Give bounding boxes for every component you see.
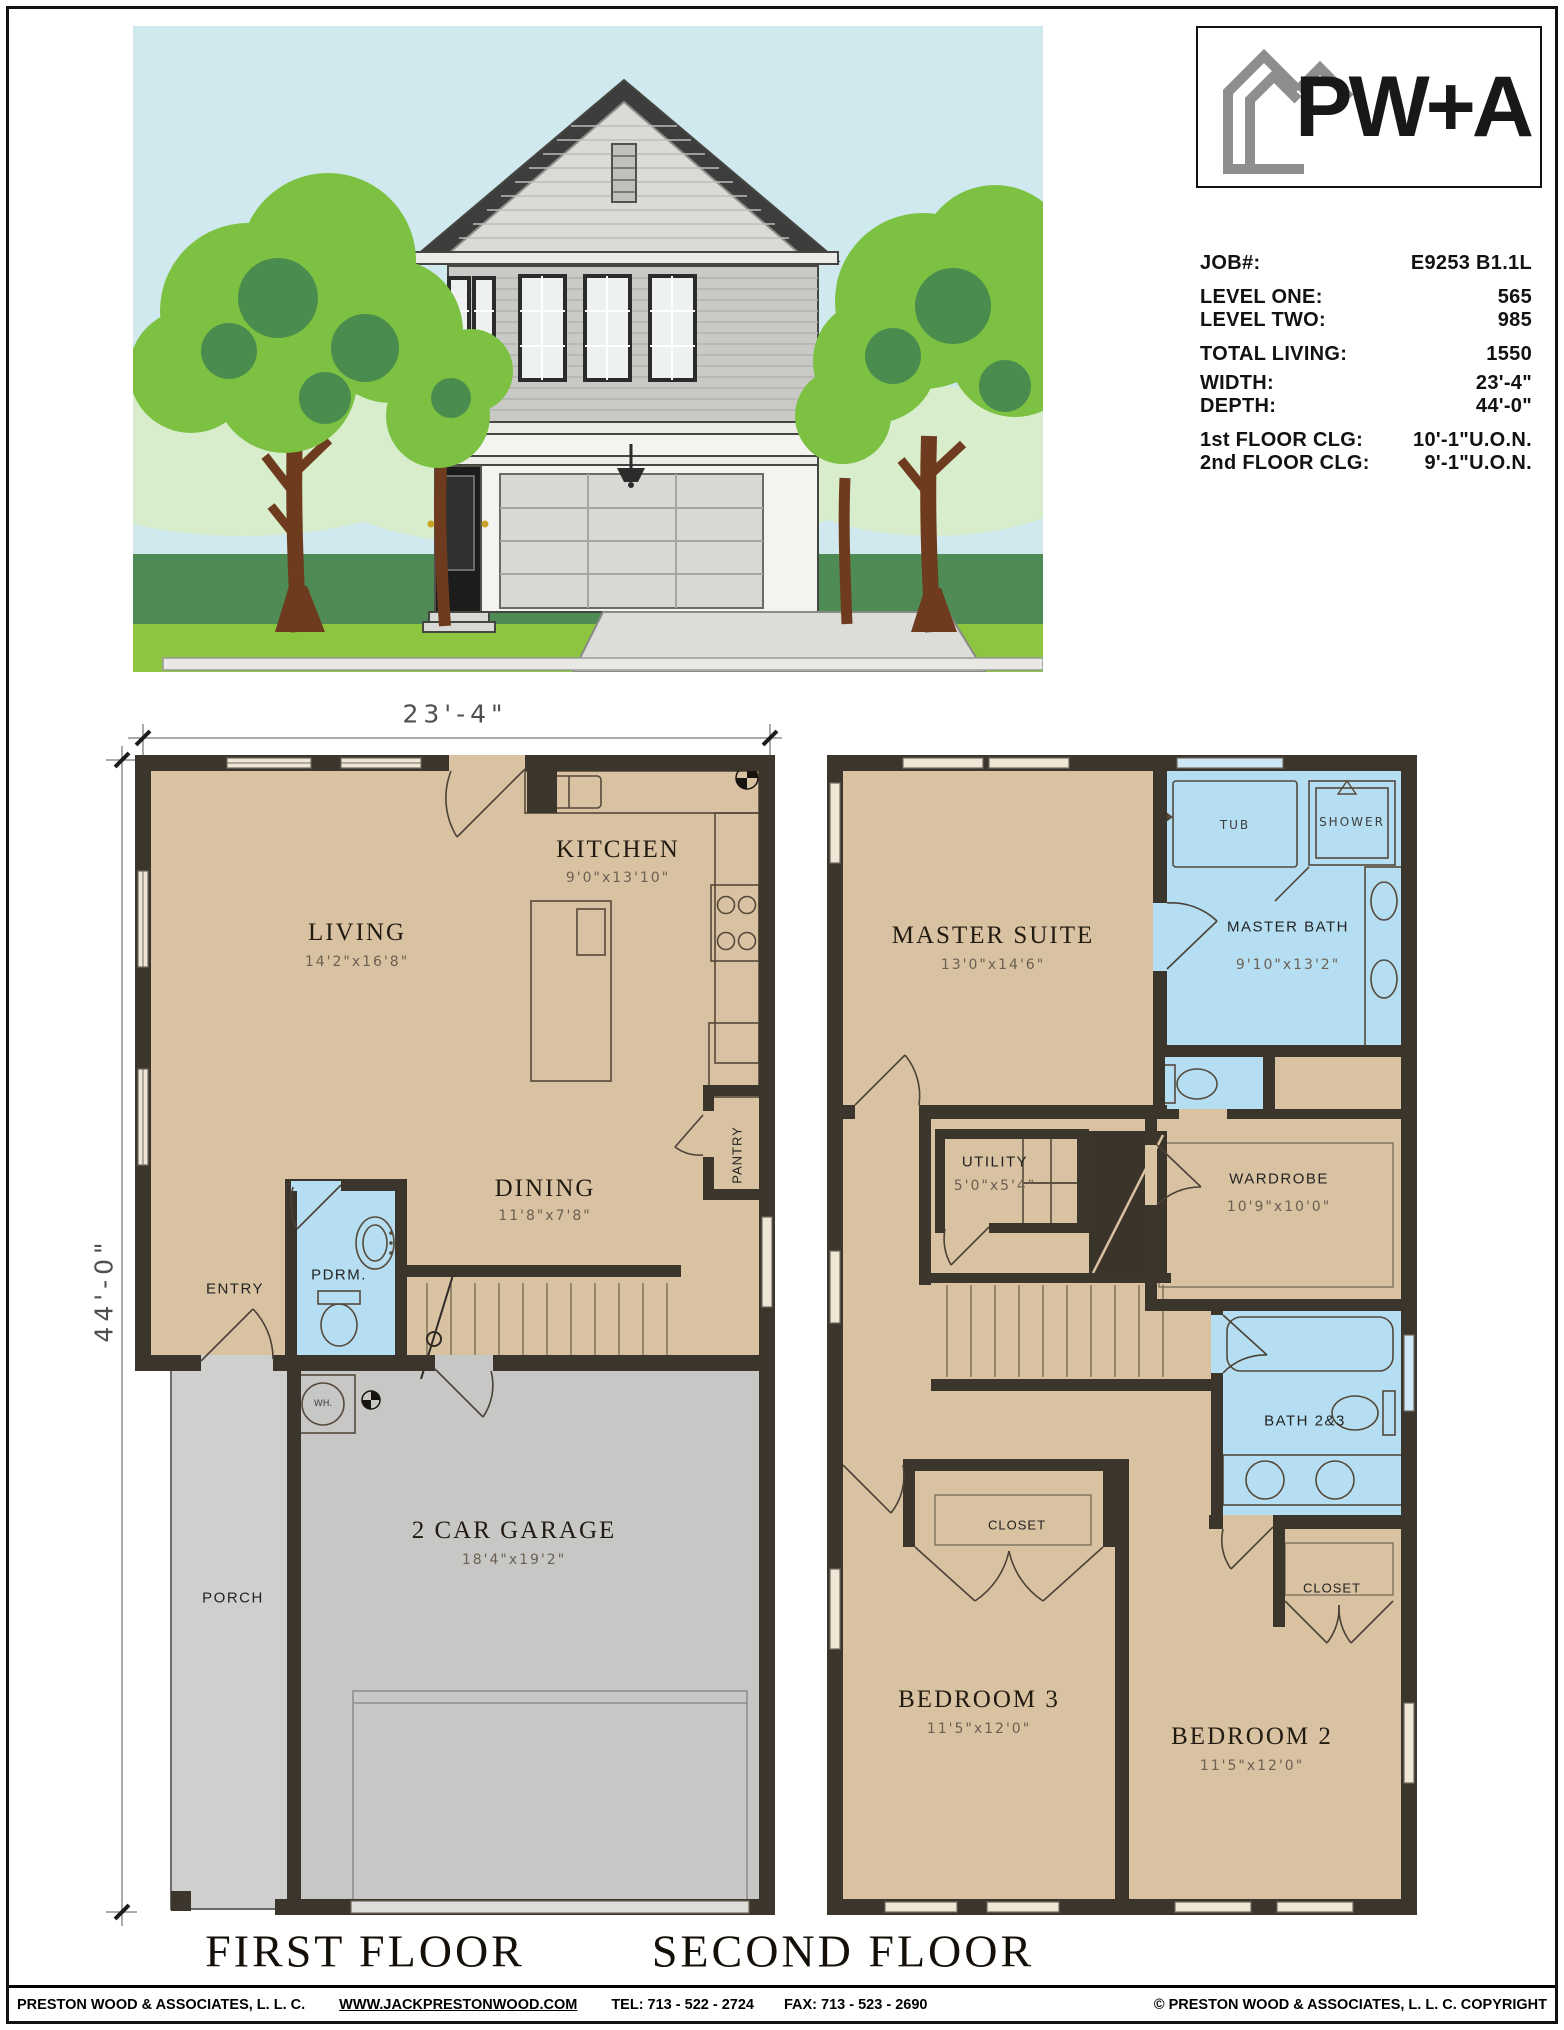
elevation-rendering [133, 26, 1043, 672]
job-row: JOB#:E9253 B1.1L [1200, 252, 1532, 275]
footer-website-link[interactable]: WWW.JACKPRESTONWOOD.COM [339, 1997, 577, 2013]
job-row: LEVEL TWO:985 [1200, 309, 1532, 332]
footer-company: PRESTON WOOD & ASSOCIATES, L. L. C. [17, 1997, 305, 2013]
job-row: DEPTH:44'-0" [1200, 395, 1532, 418]
job-row: 2nd FLOOR CLG:9'-1"U.O.N. [1200, 452, 1532, 475]
width-dimension: 23'-4" [402, 700, 507, 729]
second-floor-plan [827, 755, 1417, 1915]
job-info: JOB#:E9253 B1.1L LEVEL ONE:565 LEVEL TWO… [1200, 252, 1532, 475]
footer-fax: FAX: 713 - 523 - 2690 [784, 1997, 927, 2013]
first-floor-plan [135, 755, 775, 1915]
footer-copyright: © PRESTON WOOD & ASSOCIATES, L. L. C. CO… [1154, 1997, 1547, 2013]
first-floor-title: FIRST FLOOR [205, 1925, 525, 1978]
job-row: LEVEL ONE:565 [1200, 286, 1532, 309]
footer-tel: TEL: 713 - 522 - 2724 [611, 1997, 754, 2013]
job-row: 1st FLOOR CLG:10'-1"U.O.N. [1200, 429, 1532, 452]
plan-sheet: PW+A JOB#:E9253 B1.1L LEVEL ONE:565 LEVE… [0, 0, 1564, 2030]
job-row: TOTAL LIVING:1550 [1200, 343, 1532, 366]
depth-dimension: 44'-0" [90, 1237, 119, 1342]
footer: PRESTON WOOD & ASSOCIATES, L. L. C. WWW.… [9, 1985, 1555, 2021]
logo: PW+A [1196, 26, 1542, 188]
logo-text: PW+A [1295, 58, 1530, 157]
second-floor-title: SECOND FLOOR [652, 1925, 1034, 1978]
job-row: WIDTH:23'-4" [1200, 372, 1532, 395]
